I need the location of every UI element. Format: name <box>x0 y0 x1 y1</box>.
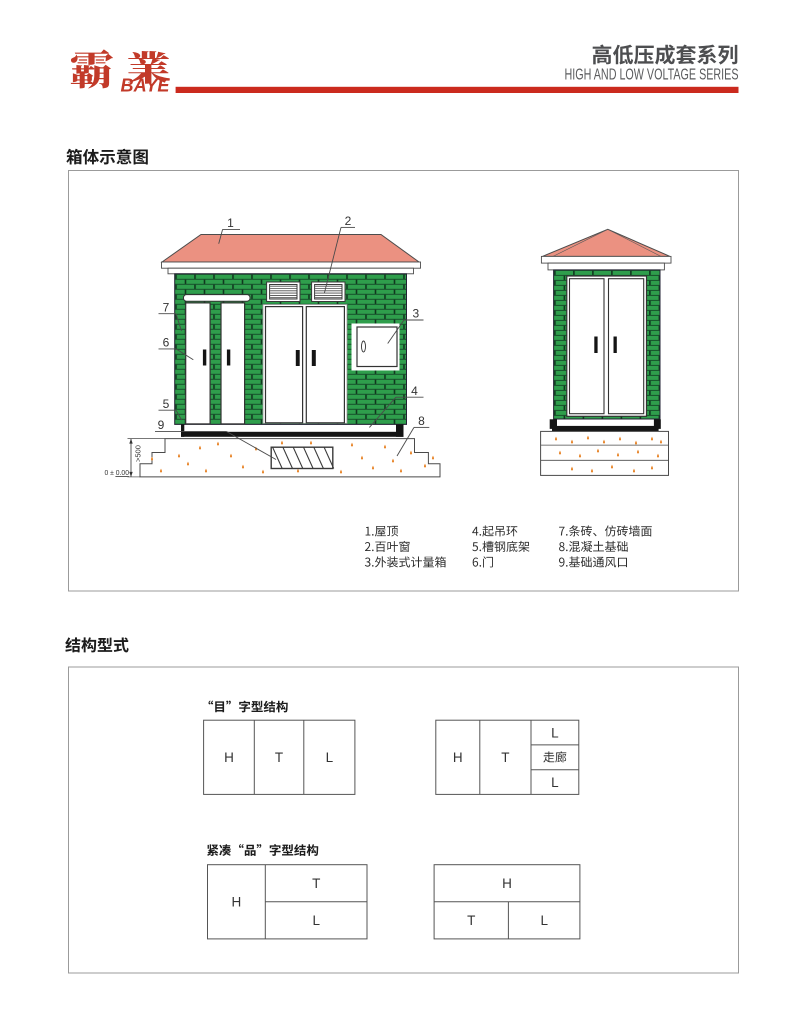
svg-text:4: 4 <box>411 384 418 398</box>
svg-text:L: L <box>540 913 548 928</box>
svg-text:3: 3 <box>412 307 419 321</box>
svg-text:H: H <box>453 750 463 765</box>
svg-text:T: T <box>467 913 475 928</box>
svg-text:L: L <box>312 913 320 928</box>
svg-text:T: T <box>312 876 320 891</box>
svg-text:0 ± 0.00: 0 ± 0.00 <box>105 468 130 477</box>
svg-text:H: H <box>224 750 234 765</box>
svg-text:T: T <box>501 750 509 765</box>
svg-text:L: L <box>551 775 559 790</box>
svg-text:9: 9 <box>158 418 165 432</box>
svg-text:H: H <box>502 876 512 891</box>
svg-text:L: L <box>551 725 559 740</box>
svg-text:T: T <box>275 750 283 765</box>
svg-text:2: 2 <box>345 214 352 228</box>
svg-text:HIGH AND LOW VOLTAGE SERIES: HIGH AND LOW VOLTAGE SERIES <box>565 67 739 84</box>
svg-text:L: L <box>326 750 334 765</box>
svg-text:>500: >500 <box>134 445 143 462</box>
svg-text:H: H <box>232 895 242 910</box>
svg-text:8: 8 <box>418 414 425 428</box>
svg-text:7: 7 <box>163 300 170 314</box>
svg-text:5: 5 <box>163 397 170 411</box>
svg-text:BAYE: BAYE <box>121 76 171 96</box>
svg-text:1: 1 <box>227 216 234 230</box>
svg-text:6: 6 <box>163 336 170 350</box>
